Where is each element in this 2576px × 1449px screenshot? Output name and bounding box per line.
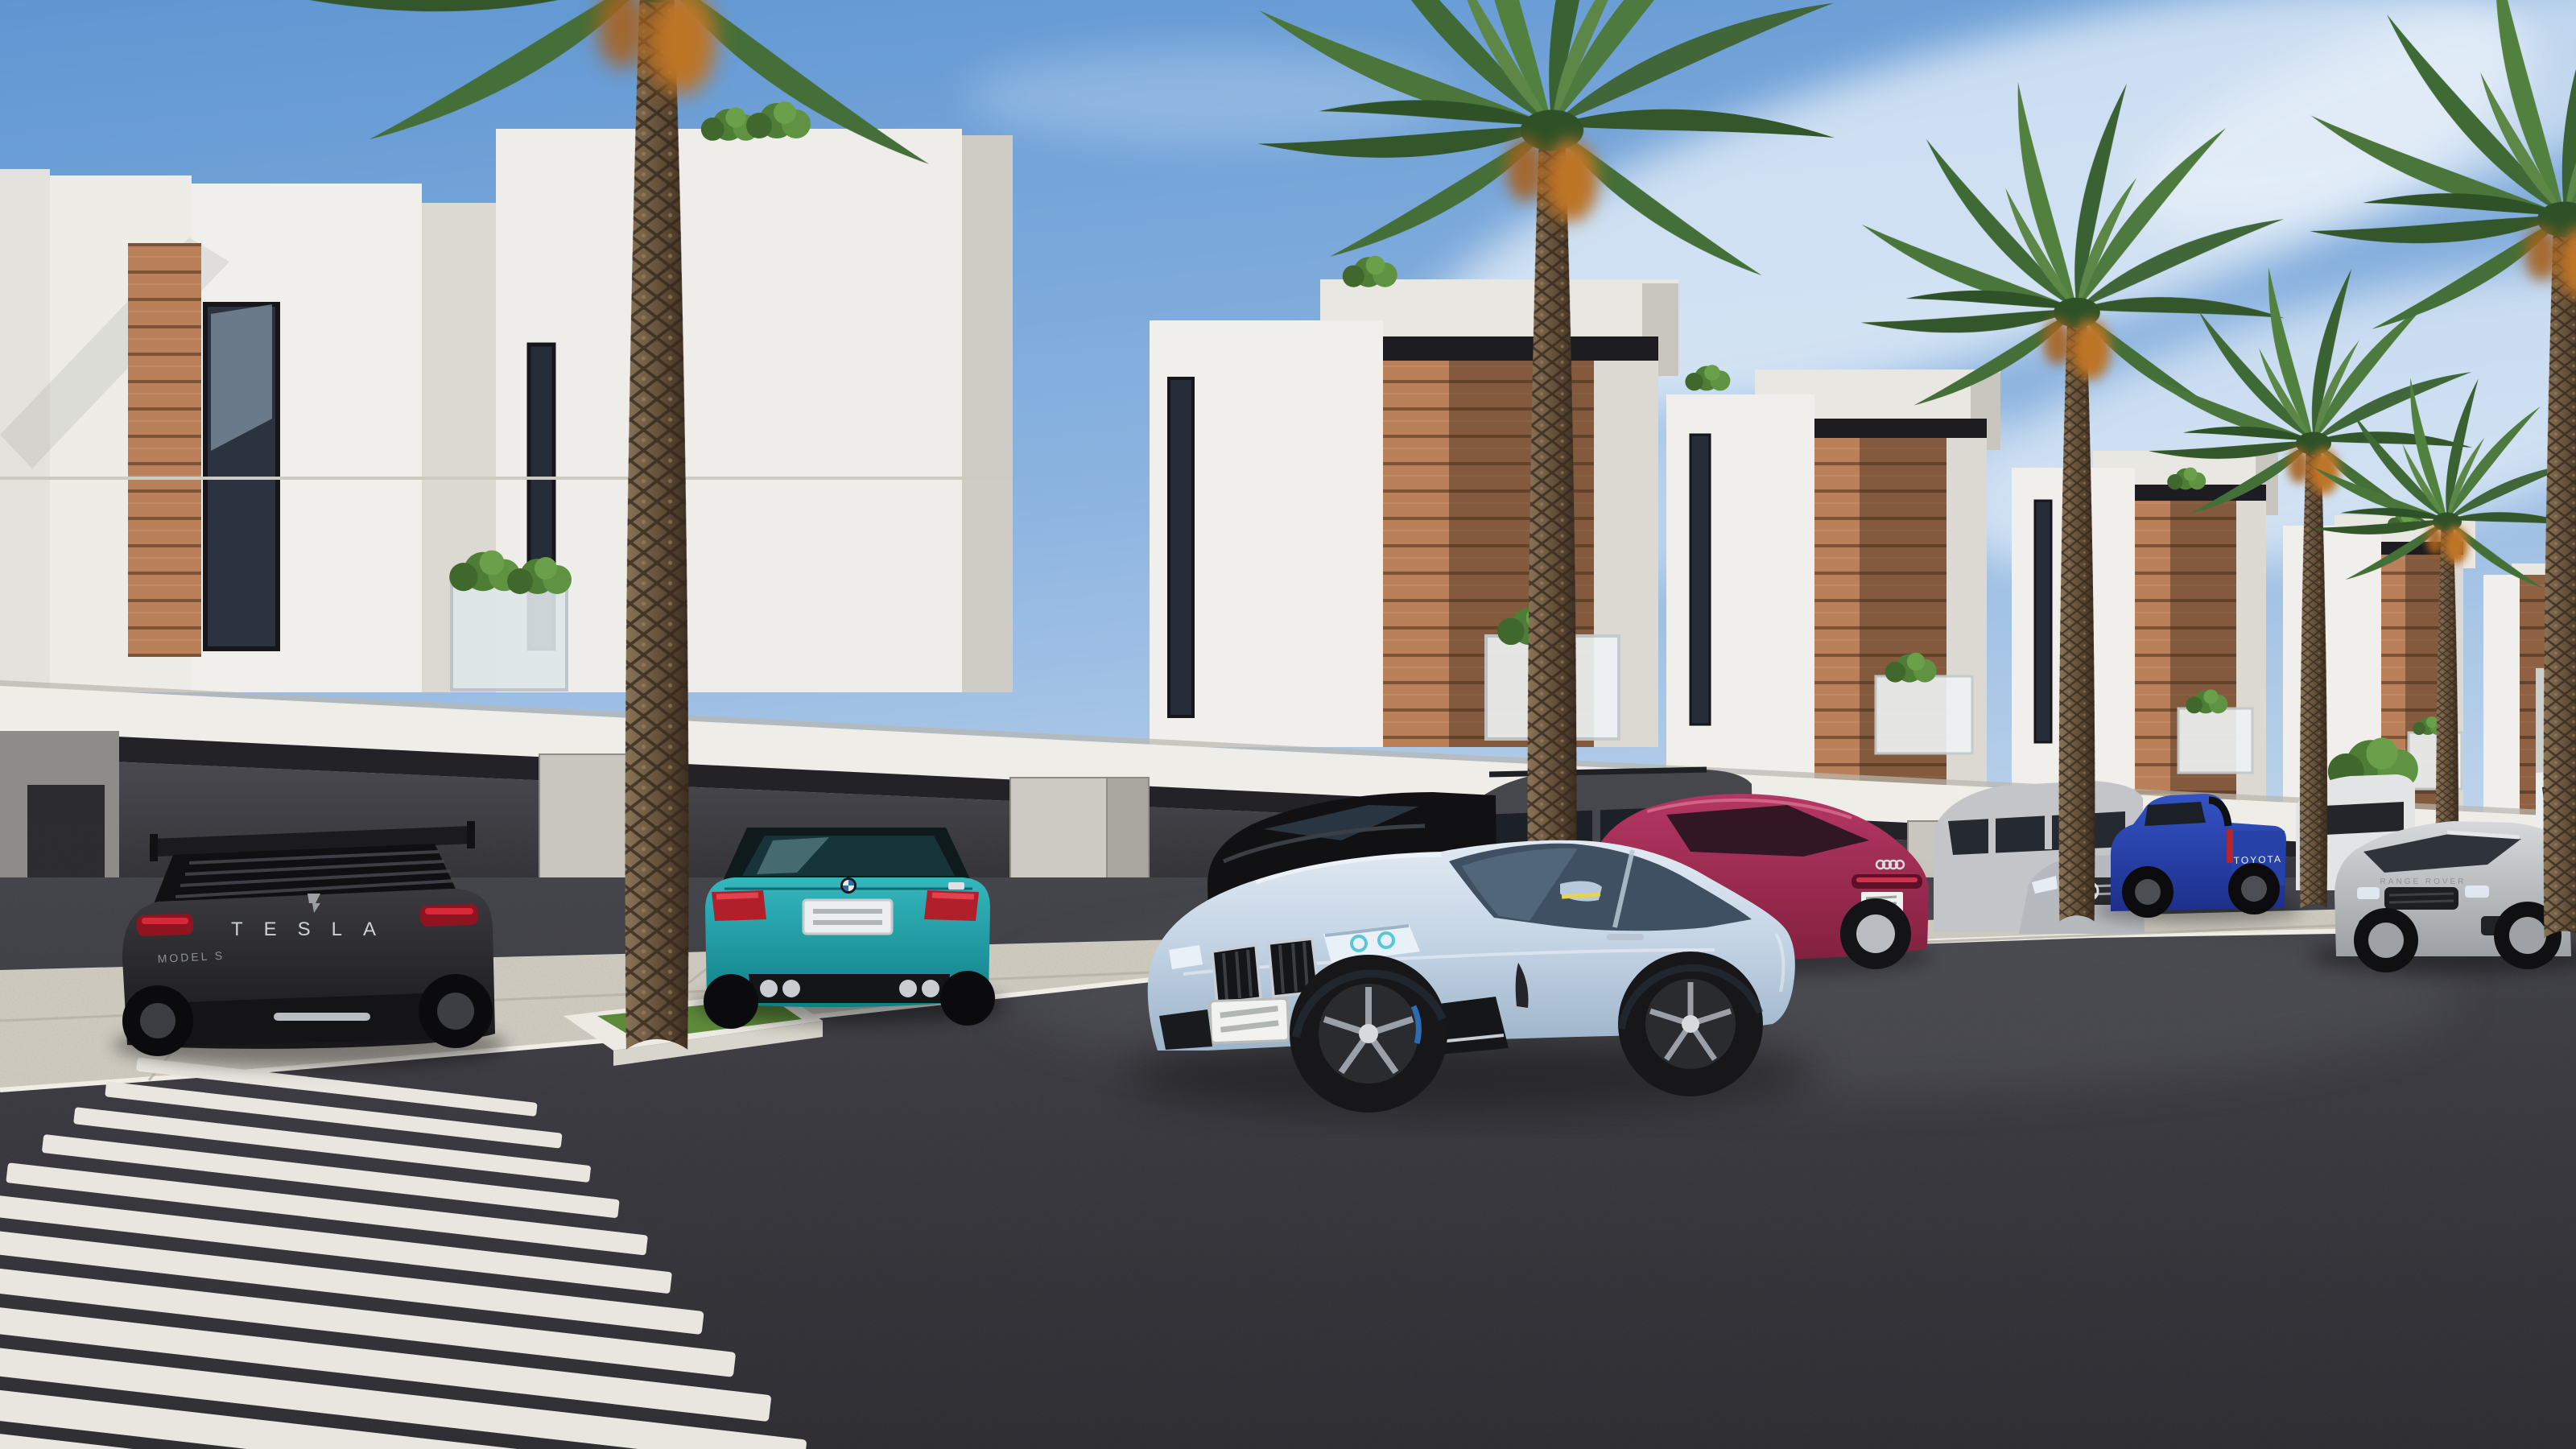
balcony-glass-planter: [452, 583, 567, 690]
bumper-intake: [1159, 1009, 1212, 1050]
wood-cladding-pilaster: [128, 243, 201, 657]
townhouse-unit-2: [1150, 256, 1678, 747]
wood-cladding-pilaster: [1383, 361, 1449, 747]
front-wheel: [1290, 955, 1447, 1113]
window-strip: [2035, 501, 2051, 742]
bmw-roundel-logo: [840, 877, 857, 894]
wood-cladding-pilaster: [2135, 501, 2170, 805]
architectural-render: TOYOTA RANGE ROVER TESLA MODEL S: [0, 0, 2576, 1449]
headlight: [2357, 887, 2380, 899]
wood-cladding-pilaster: [1814, 438, 1860, 789]
taillight: [2227, 829, 2233, 863]
scene-canvas: TOYOTA RANGE ROVER TESLA MODEL S: [0, 0, 2576, 1449]
side-mirror: [1560, 881, 1602, 902]
headlight: [2465, 885, 2489, 898]
grille: [2384, 887, 2458, 910]
balcony-glass-planter: [1876, 676, 1972, 753]
window-strip: [1169, 378, 1193, 716]
range-rover-hood-badge: RANGE ROVER: [2380, 877, 2467, 886]
townhouse-unit-3: [1666, 365, 2000, 789]
m2-badge: [948, 882, 964, 890]
bmw-m2-coupe: [692, 828, 1006, 1029]
taillight: [137, 914, 194, 936]
rear-wheel: [1618, 952, 1763, 1096]
tesla-badge: TESLA: [231, 919, 397, 940]
balcony-glass-planter: [2178, 708, 2252, 773]
townhouse-unit-1: [0, 101, 1013, 692]
taillight: [420, 904, 479, 927]
door-handle: [1607, 934, 1644, 940]
exhaust-trim: [274, 1013, 370, 1021]
diffuser: [749, 974, 950, 1003]
townhouse-unit-4: [2012, 451, 2278, 805]
window-strip: [1690, 435, 1710, 724]
license-plate: [803, 900, 892, 934]
